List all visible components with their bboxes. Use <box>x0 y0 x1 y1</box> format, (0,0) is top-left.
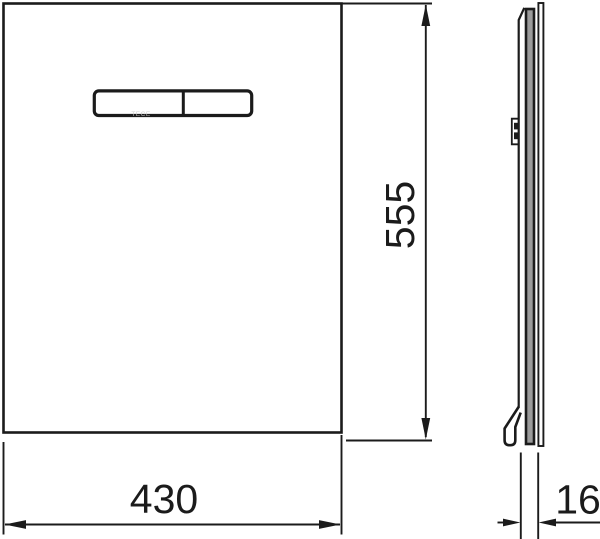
side-glass-plate <box>526 9 534 444</box>
dimension-height: 555 <box>341 4 432 441</box>
depth-arrow-left-icon <box>539 519 556 527</box>
side-rear-rail <box>538 3 543 446</box>
dimension-depth: 16 <box>498 453 600 539</box>
front-view: TECE <box>4 4 342 433</box>
height-arrow-up-icon <box>421 5 430 27</box>
flush-button-group <box>94 91 251 116</box>
drawing-canvas: TECE 555 <box>0 0 600 539</box>
width-dimension-label: 430 <box>130 476 198 522</box>
height-dimension-label: 555 <box>377 181 423 249</box>
technical-drawing: TECE 555 <box>0 0 600 539</box>
dimension-width: 430 <box>4 435 342 535</box>
height-arrow-down-icon <box>421 418 430 440</box>
side-bottom-hook <box>505 407 521 446</box>
panel-outline <box>4 4 342 433</box>
width-arrow-left-icon <box>5 520 27 529</box>
depth-arrow-right-icon <box>503 519 520 527</box>
faint-logo-mark: TECE <box>131 111 151 118</box>
side-clip-nub-bottom <box>514 132 520 139</box>
width-arrow-right-icon <box>319 520 341 529</box>
side-view <box>505 3 544 446</box>
side-front-sheet <box>519 8 525 408</box>
side-clip-nub-top <box>514 123 520 130</box>
depth-dimension-label: 16 <box>555 477 600 523</box>
